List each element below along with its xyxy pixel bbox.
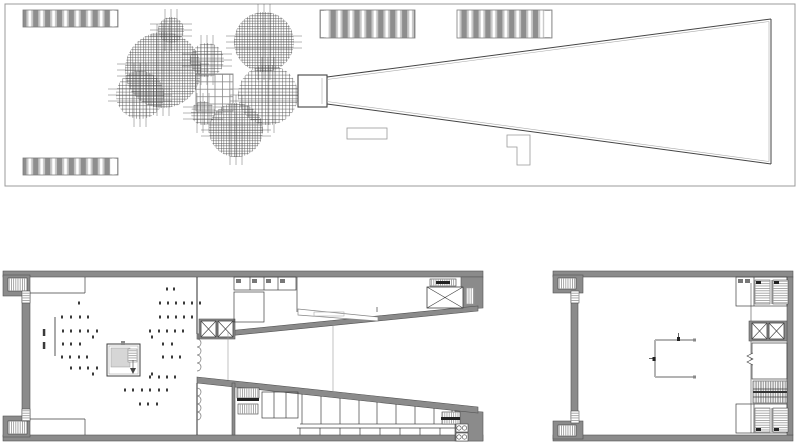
column-dot — [92, 373, 94, 376]
column-dot — [87, 367, 89, 370]
survey-mark — [653, 357, 656, 361]
entry-room — [30, 277, 85, 293]
curtain-wall — [197, 277, 201, 435]
column-dot — [149, 389, 151, 392]
striped-skylight-block — [320, 10, 415, 38]
column-dot — [156, 403, 158, 406]
column-dot — [174, 376, 176, 379]
column-dot — [159, 302, 161, 305]
column-dot — [78, 356, 80, 359]
striped-skylight-block — [23, 10, 118, 27]
column-dot — [159, 316, 161, 319]
wedge-band-upper — [197, 306, 478, 339]
column-dot — [141, 389, 143, 392]
exhibit-wall — [649, 333, 696, 379]
stair-pocket — [553, 411, 583, 439]
floor-plan-main — [3, 271, 483, 441]
column-dot — [78, 302, 80, 305]
floor-plan-drawing — [0, 0, 800, 447]
column-dot — [96, 330, 98, 333]
elevator-bank — [199, 319, 235, 339]
column-dot — [191, 302, 193, 305]
column-dash — [43, 329, 46, 336]
column-dot — [149, 376, 151, 379]
core-room — [747, 343, 787, 379]
stair-pocket — [3, 275, 30, 303]
column-dot — [132, 389, 134, 392]
stair-room-top — [736, 277, 788, 306]
column-dot — [151, 336, 153, 339]
column-dot — [162, 356, 164, 359]
elevator-car — [769, 323, 784, 339]
column-dot — [79, 343, 81, 346]
kiosk-stair-box — [107, 341, 140, 376]
floor-plan-annex — [553, 271, 793, 441]
column-dot — [62, 343, 64, 346]
column-dot — [70, 330, 72, 333]
striped-skylight-block — [23, 158, 118, 175]
column-dot — [183, 316, 185, 319]
service-stair — [237, 388, 259, 398]
column-dash — [43, 342, 46, 349]
column-dot — [171, 356, 173, 359]
column-dot — [62, 330, 64, 333]
column-dot — [167, 302, 169, 305]
courtyard-grid — [196, 74, 233, 111]
column-dot — [158, 330, 160, 333]
toilet-row — [234, 277, 296, 290]
column-dot — [151, 373, 153, 376]
elevator-car — [218, 321, 233, 337]
striped-skylight-block — [457, 10, 552, 38]
pocket-stair — [8, 421, 27, 434]
pool-rectangle — [347, 128, 387, 139]
column-dot — [149, 330, 151, 333]
column-dot — [92, 336, 94, 339]
stair-room-bottom — [736, 404, 788, 433]
elevator-car — [201, 321, 216, 337]
column-dot — [86, 356, 88, 359]
stair-pocket — [3, 409, 30, 437]
column-dot — [173, 288, 175, 291]
column-dot — [166, 376, 168, 379]
column-dot — [79, 330, 81, 333]
column-dot — [175, 316, 177, 319]
column-dot — [61, 316, 63, 319]
site-plan — [5, 4, 795, 186]
architectural-drawing-sheet — [0, 0, 800, 447]
ramp — [298, 307, 378, 321]
elevator-bank — [749, 321, 787, 341]
pocket-stair — [8, 278, 27, 291]
column-dot — [166, 288, 168, 291]
column-dot — [158, 389, 160, 392]
perimeter-walls — [3, 271, 483, 441]
column-dot — [147, 403, 149, 406]
column-dot — [183, 302, 185, 305]
corner-stair — [441, 412, 460, 424]
freight-elevator-car — [427, 287, 463, 308]
service-stair — [238, 404, 258, 414]
column-dot — [158, 376, 160, 379]
column-dot — [174, 330, 176, 333]
column-dot — [139, 403, 141, 406]
survey-mark — [677, 337, 680, 341]
column-dot — [61, 356, 63, 359]
column-dot — [87, 316, 89, 319]
room-partition — [234, 292, 264, 322]
column-dot — [175, 302, 177, 305]
pocket-stair — [558, 425, 576, 436]
entry-room — [30, 419, 85, 435]
column-dot — [70, 343, 72, 346]
column-dot — [87, 330, 89, 333]
column-dot — [124, 389, 126, 392]
column-dot — [167, 316, 169, 319]
column-dot — [162, 343, 164, 346]
column-dot — [79, 367, 81, 370]
column-dot — [70, 367, 72, 370]
column-dot — [191, 316, 193, 319]
column-dot — [166, 330, 168, 333]
column-dot — [69, 356, 71, 359]
column-dot — [199, 302, 201, 305]
column-dot — [182, 330, 184, 333]
pocket-stair — [558, 278, 576, 289]
column-dot — [70, 316, 72, 319]
column-dot — [171, 343, 173, 346]
column-dot — [79, 316, 81, 319]
elevator-car — [752, 323, 767, 339]
escalator — [753, 381, 787, 403]
column-dot — [179, 356, 181, 359]
stair-pocket — [553, 275, 583, 303]
column-dot — [166, 389, 168, 392]
office-partitions-lower — [297, 428, 455, 435]
column-dot — [96, 367, 98, 370]
